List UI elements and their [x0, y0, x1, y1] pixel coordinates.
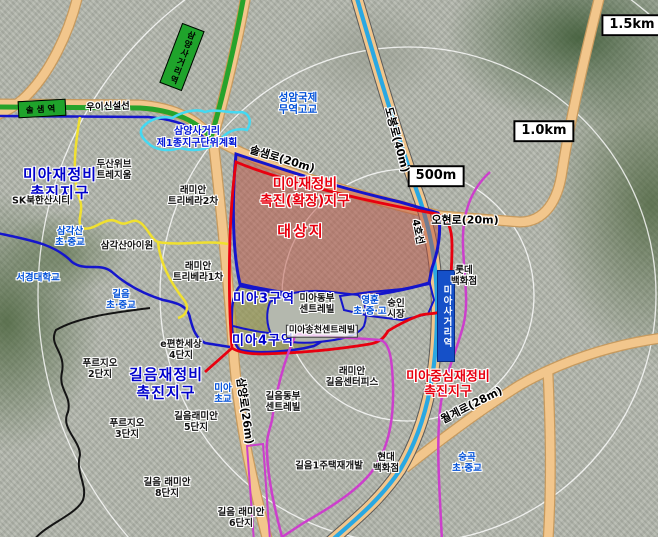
station-mia-sageori: 미아사거리역 — [437, 270, 455, 362]
station-solsaem: 솔샘역 — [18, 99, 67, 118]
boundary-blue-corridor — [0, 116, 208, 142]
scale-label-500m: 500m — [408, 165, 465, 187]
map-overlay-layer — [0, 0, 658, 537]
scale-label-1km: 1.0km — [513, 120, 574, 142]
station-solsaem-label: 솔샘역 — [25, 102, 58, 116]
satellite-map: 솔샘역 삼양사거리역 미아사거리역 1.5km 1.0km 500m 우이신설선… — [0, 0, 658, 537]
road-southeast — [548, 372, 550, 537]
boundary-black-gileum — [34, 308, 150, 537]
road-ohyeonro — [441, 0, 600, 222]
scale-label-1-5km: 1.5km — [601, 14, 658, 36]
station-mia-sageori-label: 미아사거리역 — [439, 285, 453, 348]
boundary-blue-west — [0, 233, 230, 347]
